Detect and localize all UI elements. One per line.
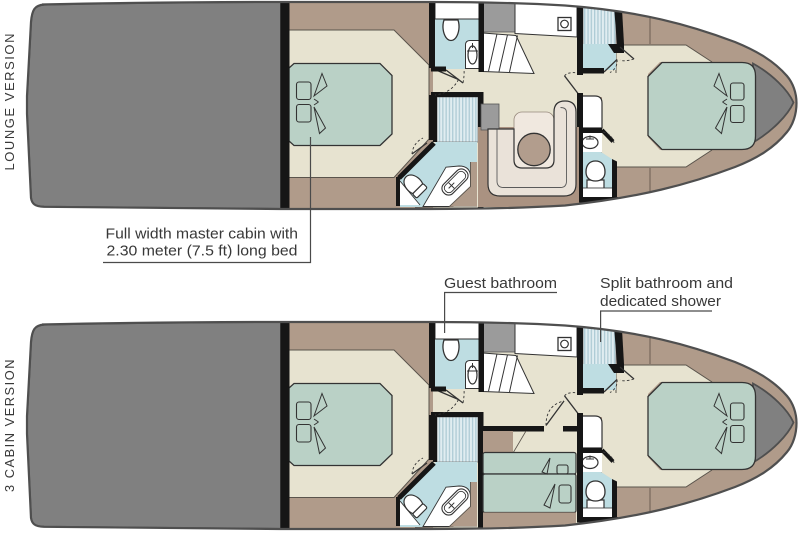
svg-text:Guest bathroom: Guest bathroom xyxy=(444,276,557,292)
svg-text:LOUNGE VERSION: LOUNGE VERSION xyxy=(2,32,17,171)
svg-text:Full width master cabin with: Full width master cabin with xyxy=(106,227,299,243)
svg-text:Split bathroom and: Split bathroom and xyxy=(600,276,733,292)
svg-text:3 CABIN VERSION: 3 CABIN VERSION xyxy=(2,358,17,492)
svg-text:2.30 meter (7.5 ft) long bed: 2.30 meter (7.5 ft) long bed xyxy=(107,244,298,260)
svg-text:dedicated shower: dedicated shower xyxy=(600,294,721,310)
